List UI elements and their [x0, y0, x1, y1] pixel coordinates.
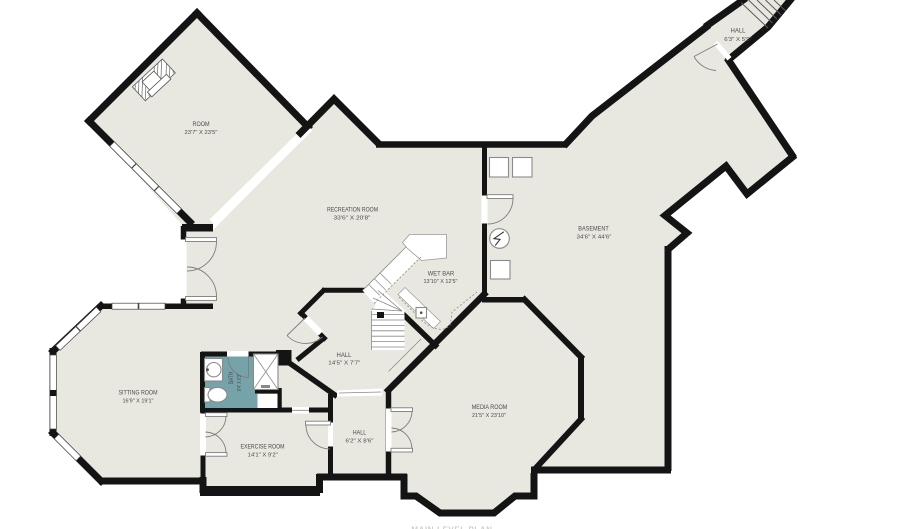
- svg-text:BATH: BATH: [228, 372, 235, 384]
- svg-text:16'9" X 19'1": 16'9" X 19'1": [123, 398, 154, 404]
- svg-text:HALL: HALL: [353, 430, 367, 437]
- svg-text:MAIN LEVEL PLAN: MAIN LEVEL PLAN: [411, 526, 492, 529]
- svg-text:EXERCISE ROOM: EXERCISE ROOM: [241, 444, 285, 451]
- svg-text:6'3" X 5'9": 6'3" X 5'9": [724, 37, 752, 43]
- svg-text:6'2" X 8'6": 6'2" X 8'6": [346, 439, 374, 445]
- svg-text:BASEMENT: BASEMENT: [578, 226, 609, 233]
- svg-text:23'7" X 23'5": 23'7" X 23'5": [185, 130, 218, 136]
- svg-text:13'10" X 12'5": 13'10" X 12'5": [424, 279, 458, 285]
- svg-text:SITTING ROOM: SITTING ROOM: [119, 390, 158, 397]
- svg-text:34'6" X 44'6": 34'6" X 44'6": [577, 235, 612, 241]
- svg-text:RECREATION ROOM: RECREATION ROOM: [327, 207, 378, 214]
- svg-text:ROOM: ROOM: [193, 121, 210, 128]
- svg-text:21'5" X 23'10": 21'5" X 23'10": [472, 413, 506, 419]
- svg-text:WET BAR: WET BAR: [428, 271, 455, 278]
- svg-text:14'5" X 7'7": 14'5" X 7'7": [328, 361, 360, 367]
- svg-text:HALL: HALL: [337, 352, 353, 359]
- svg-text:14'1" X 9'2": 14'1" X 9'2": [248, 452, 278, 458]
- svg-text:33'6" X 20'8": 33'6" X 20'8": [334, 215, 371, 221]
- svg-text:HALL: HALL: [731, 27, 747, 34]
- svg-text:8'4" X 6'3": 8'4" X 6'3": [237, 374, 243, 391]
- svg-text:MEDIA ROOM: MEDIA ROOM: [472, 404, 508, 411]
